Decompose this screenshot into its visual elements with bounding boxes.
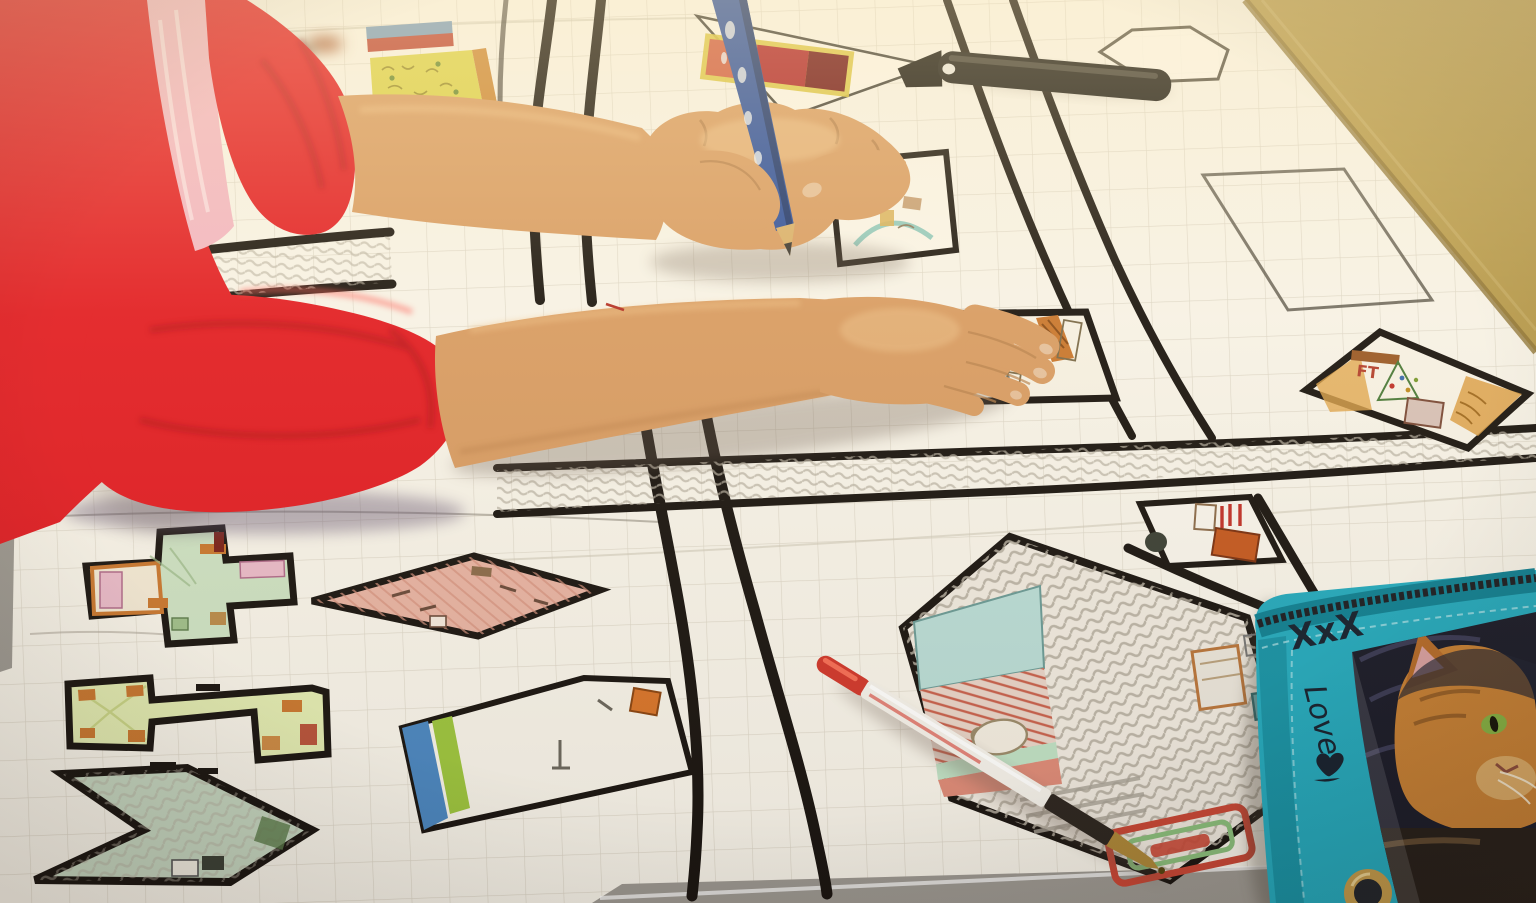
vignette [0,0,1536,903]
scene-canvas: My fav FT [0,0,1536,903]
photo-child-drawing-map: My fav FT [0,0,1536,903]
